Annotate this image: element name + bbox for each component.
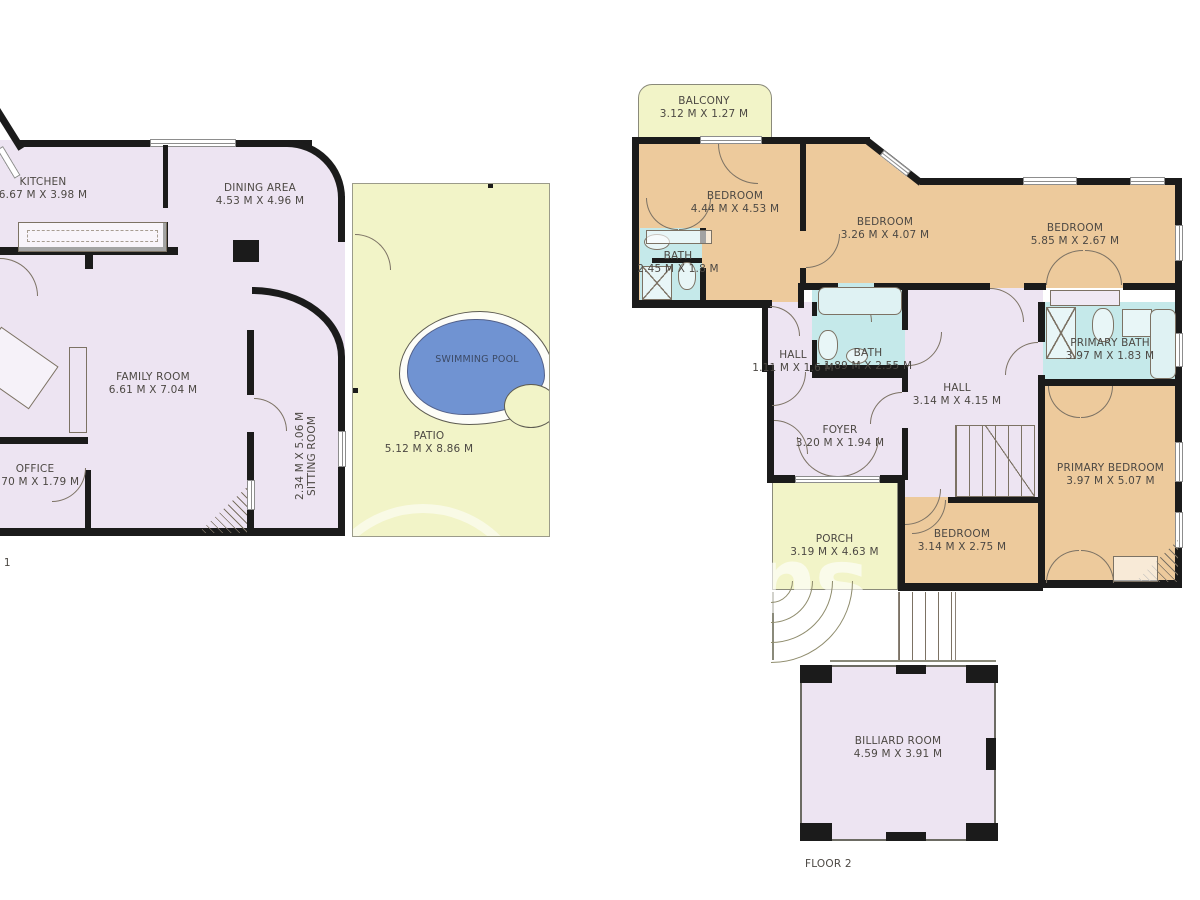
closet-shelf [646,230,712,244]
wall [1123,283,1182,290]
office-label: OFFICE 2.70 M X 1.79 M [0,463,110,489]
bedroom-s-label: BEDROOM 3.14 M X 2.75 M [897,528,1027,554]
dining-label: DINING AREA 4.53 M X 4.96 M [185,182,335,208]
wall [1165,178,1182,185]
watermark-arcs [771,581,867,667]
sink-icon [1122,309,1152,337]
room-name: HALL [892,382,1022,395]
wall [804,137,870,144]
sitting-room-label: 2.34 M X 5.06 M SITTING ROOM [294,396,332,516]
room-name: BEDROOM [1000,222,1150,235]
wall [920,178,1023,185]
room-name: PORCH [773,533,896,546]
room-name: BILLIARD ROOM [802,735,994,748]
porch-label: PORCH 3.19 M X 4.63 M [773,533,896,559]
wall [800,823,832,841]
wall [812,302,817,316]
room-name: KITCHEN [0,176,118,189]
wall [1175,185,1182,225]
wall [800,665,832,683]
room-name: BEDROOM [660,190,810,203]
wall [1038,302,1045,342]
room-name: PATIO [354,430,504,443]
bath-m-label: BATH 1.89 M X 2.55 M [803,347,933,373]
foyer-label: FOYER 3.20 M X 1.94 M [775,424,905,450]
room-dims: 3.19 M X 4.63 M [773,546,896,559]
room-dims: 6.61 M X 7.04 M [78,384,228,397]
wall [966,665,998,683]
floor2-plan: BALCONY 3.12 M X 1.27 M PORCH 3.19 M X 4… [0,0,1200,900]
bath-nw-label: BATH 2.45 M X 1.8 M [613,250,743,276]
room-name: SITTING ROOM [306,396,318,516]
room-dims: 3.97 M X 1.83 M [1045,350,1175,363]
window [1023,177,1077,185]
primary-bath-label: PRIMARY BATH 3.97 M X 1.83 M [1045,337,1175,363]
window [1130,177,1165,185]
room-name: BEDROOM [810,216,960,229]
room-dims: 3.14 M X 2.75 M [897,541,1027,554]
window [1175,333,1183,367]
wall [1077,178,1130,185]
room-name: PRIMARY BEDROOM [1043,462,1178,475]
floorplan-canvas: SWIMMING POOL PATIO 5.12 M X 8.86 M [0,0,1200,900]
room-balcony: BALCONY 3.12 M X 1.27 M [638,84,772,142]
wall [1175,261,1182,333]
bathtub-icon [818,287,902,315]
billiard-label: BILLIARD ROOM 4.59 M X 3.91 M [802,735,994,761]
room-dims: 4.59 M X 3.91 M [802,748,994,761]
room-dims: 2.45 M X 1.8 M [613,263,743,276]
wall [800,141,806,231]
wall [1024,283,1046,290]
room-dims: 3.97 M X 5.07 M [1043,475,1178,488]
floor2-label: FLOOR 2 [805,858,925,871]
bedroom-nw-label: BEDROOM 4.44 M X 4.53 M [660,190,810,216]
room-dims: 6.67 M X 3.98 M [0,189,118,202]
wall [767,475,795,483]
wall [902,283,908,330]
floor-label: FLOOR 2 [805,858,925,871]
patio-label: PATIO 5.12 M X 8.86 M [354,430,504,456]
wall [896,665,926,674]
window [1175,225,1183,261]
wall [632,137,700,144]
room-dims: 5.85 M X 2.67 M [1000,235,1150,248]
arc-icon [771,581,853,663]
floorplan-page: { "palette": { "wall": "#1b1b1b", "inter… [0,0,1200,900]
room-name: OFFICE [0,463,110,476]
wall [886,832,926,841]
floor1-label: FLOOR 1 [0,557,54,570]
dresser [1113,556,1158,582]
room-name: DINING AREA [185,182,335,195]
bedroom-ne-label: BEDROOM 5.85 M X 2.67 M [1000,222,1150,248]
closet-shelf [1050,290,1120,306]
kitchen-label: KITCHEN 6.67 M X 3.98 M [0,176,118,202]
wall [898,583,1043,591]
window [700,136,762,144]
room-billiard: BILLIARD ROOM 4.59 M X 3.91 M [800,665,996,841]
room-name: PRIMARY BATH [1045,337,1175,350]
room-dims: 2.34 M X 5.06 M [294,396,306,516]
wall [966,823,998,841]
room-dims: 3.26 M X 4.07 M [810,229,960,242]
pool-label: SWIMMING POOL [400,353,550,366]
hall-c-label: HALL 3.14 M X 4.15 M [892,382,1022,408]
wall [1043,379,1182,386]
room-name: SWIMMING POOL [400,353,550,366]
floor-label: FLOOR 1 [0,557,54,570]
room-dims: 5.12 M X 8.86 M [354,443,504,456]
room-name: FAMILY ROOM [78,371,228,384]
room-dims: 4.44 M X 4.53 M [660,203,810,216]
room-porch: PORCH 3.19 M X 4.63 M [772,480,898,590]
room-name: BALCONY [639,95,769,108]
room-dims: 3.20 M X 1.94 M [775,437,905,450]
exterior-stairs [898,592,956,660]
room-name: BATH [803,347,933,360]
wall [920,283,990,290]
room-name: BEDROOM [897,528,1027,541]
family-room-label: FAMILY ROOM 6.61 M X 7.04 M [78,371,228,397]
room-dims: 3.12 M X 1.27 M [639,108,769,121]
wall [632,137,639,307]
room-name: FOYER [775,424,905,437]
door-threshold [795,476,880,483]
room-dims: 2.70 M X 1.79 M [0,476,110,489]
room-dims: 4.53 M X 4.96 M [185,195,335,208]
primary-bedroom-label: PRIMARY BEDROOM 3.97 M X 5.07 M [1043,462,1178,488]
stairs-diagonal [985,425,1035,497]
room-dims: 1.89 M X 2.55 M [803,360,933,373]
balcony-label: BALCONY 3.12 M X 1.27 M [639,95,769,121]
bedroom-n-label: BEDROOM 3.26 M X 4.07 M [810,216,960,242]
wall [948,497,1043,503]
room-dims: 3.14 M X 4.15 M [892,395,1022,408]
room-name: BATH [613,250,743,263]
